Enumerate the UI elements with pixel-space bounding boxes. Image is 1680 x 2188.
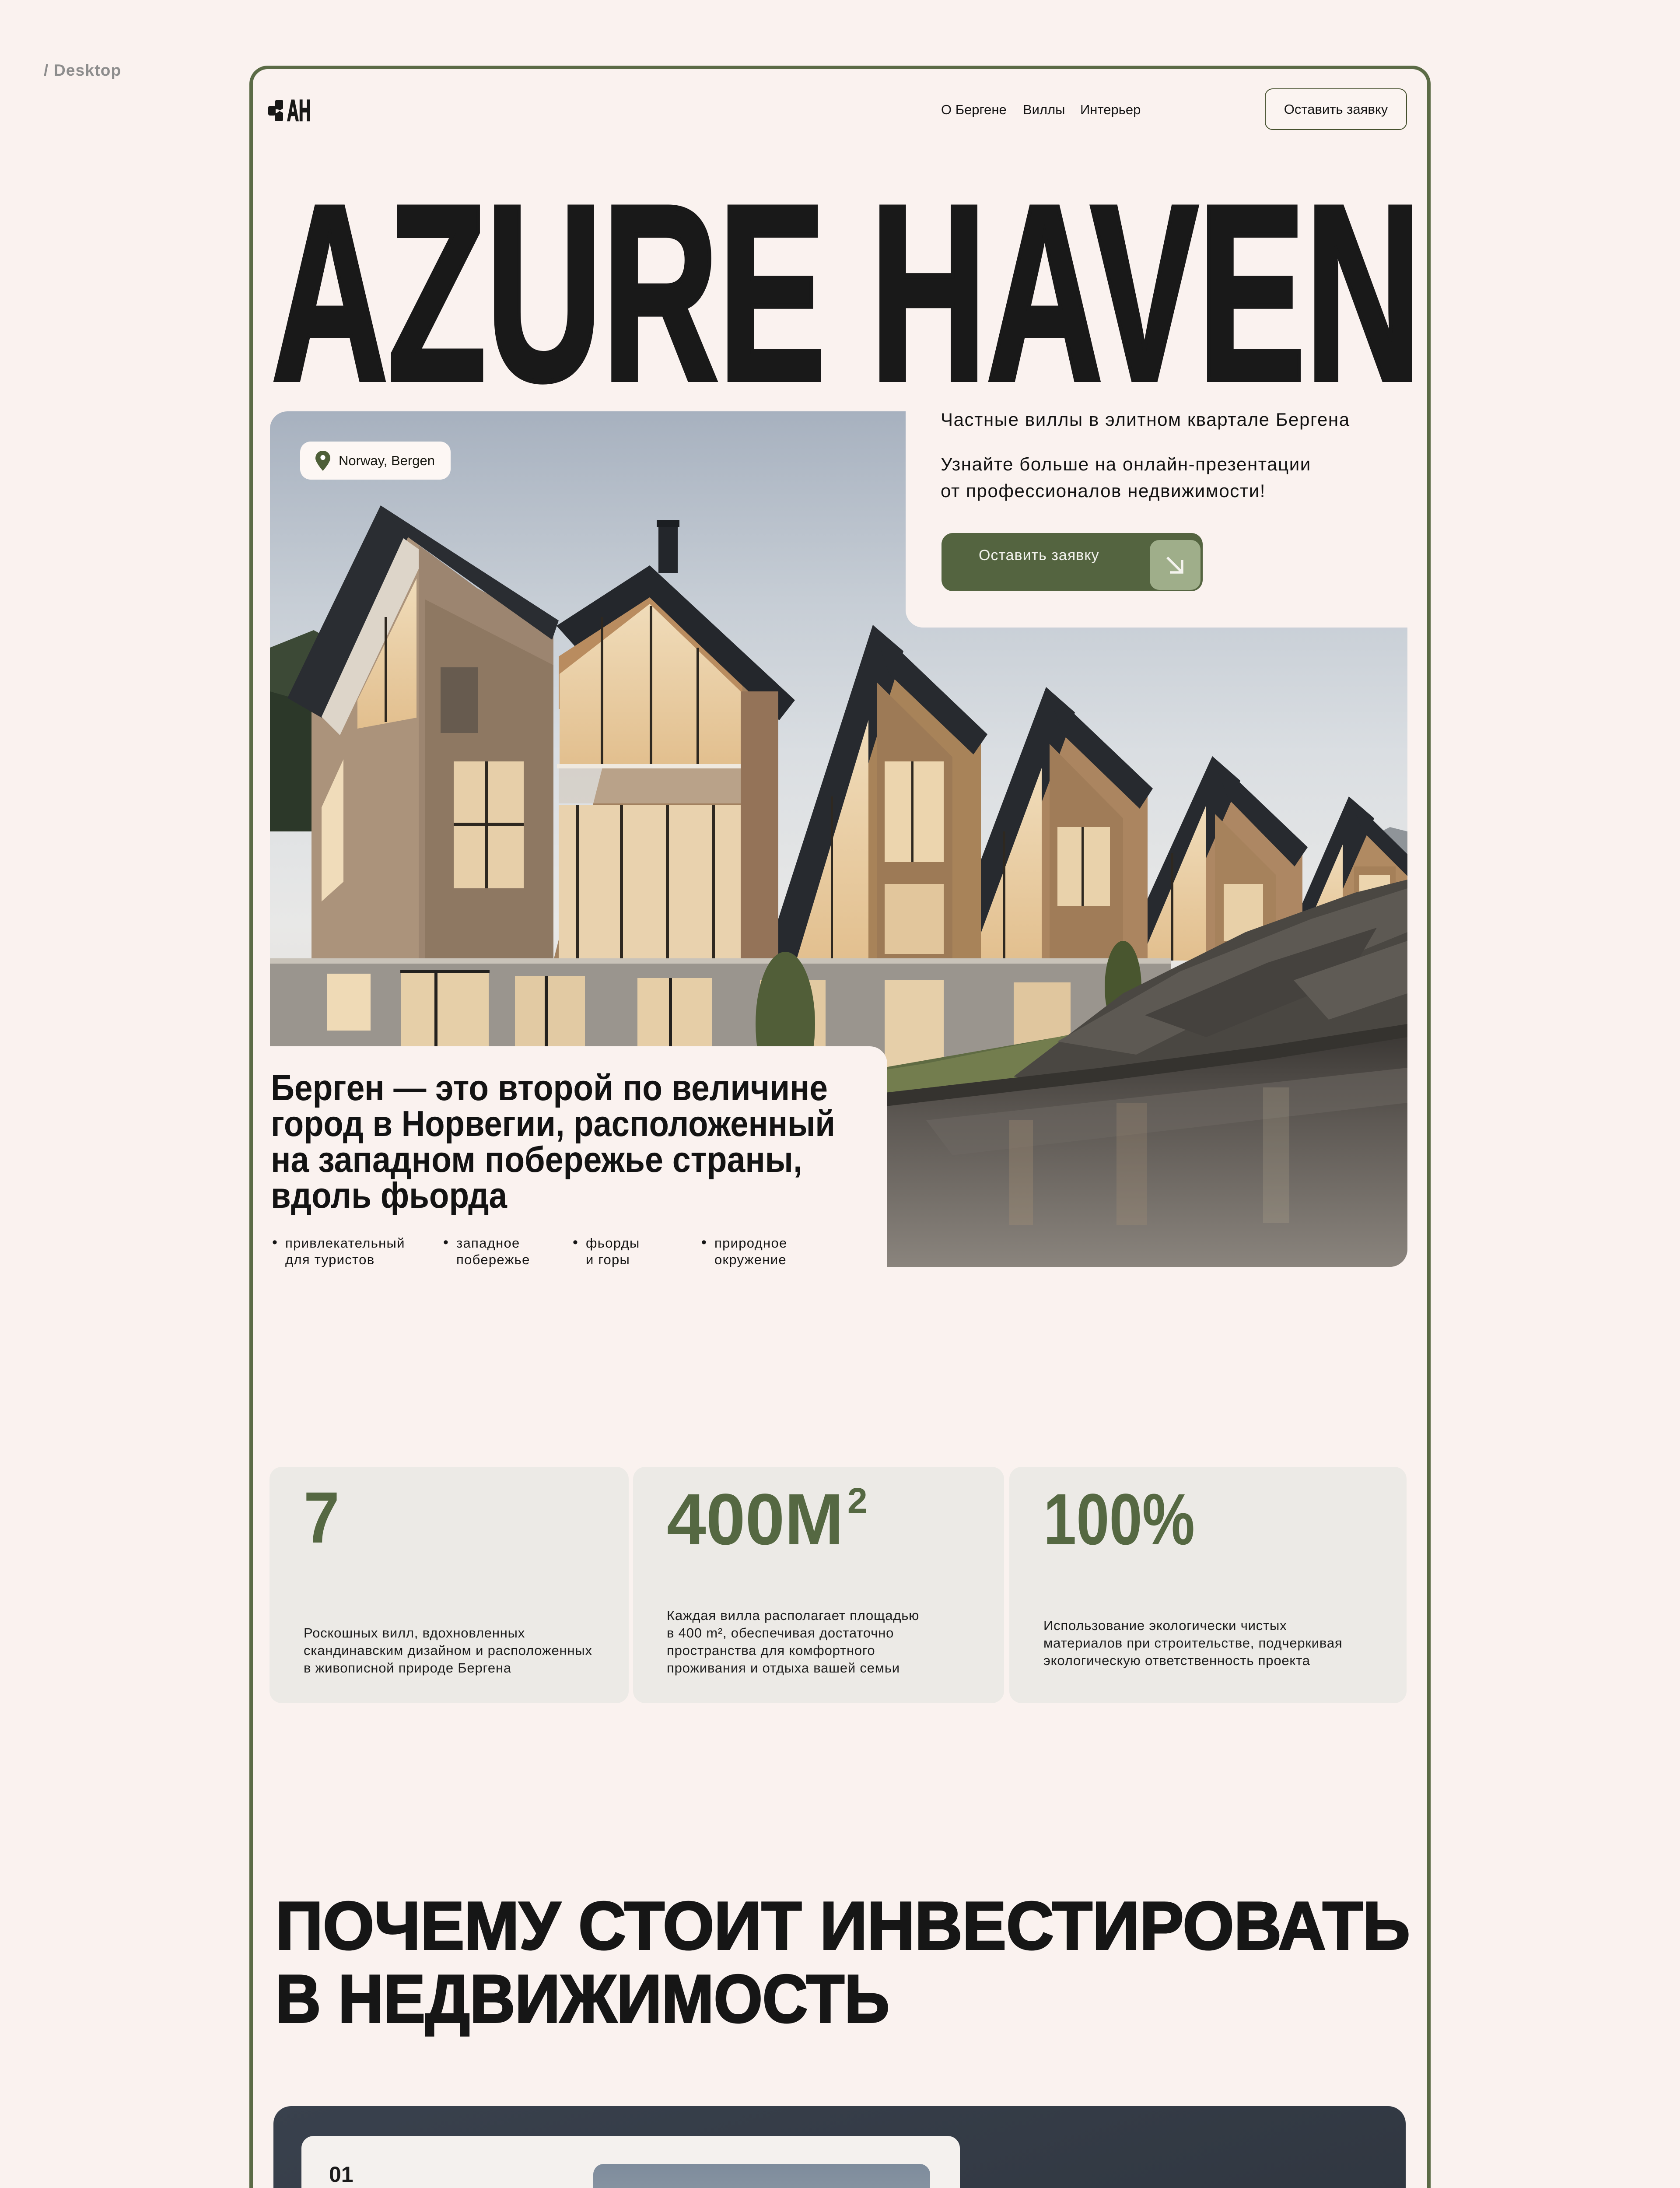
svg-text:400М: 400М xyxy=(667,1479,843,1560)
svg-text:В НЕДВИЖИМОСТЬ: В НЕДВИЖИМОСТЬ xyxy=(276,1961,889,2037)
svg-text:AZURE HAVEN: AZURE HAVEN xyxy=(272,188,1412,385)
svg-text:ПОЧЕМУ СТОИТ ИНВЕСТИРОВАТЬ: ПОЧЕМУ СТОИТ ИНВЕСТИРОВАТЬ xyxy=(276,1895,1410,1964)
svg-text:100%: 100% xyxy=(1043,1479,1195,1560)
svg-text:на западном побережье страны,: на западном побережье страны, xyxy=(271,1139,802,1180)
svg-text:город в Норвегии, расположенны: город в Норвегии, расположенный xyxy=(271,1103,835,1144)
svg-text:2: 2 xyxy=(847,1481,868,1521)
svg-text:Берген — это второй по величин: Берген — это второй по величине xyxy=(271,1069,828,1108)
svg-text:7: 7 xyxy=(304,1477,339,1558)
svg-text:вдоль фьорда: вдоль фьорда xyxy=(271,1175,507,1216)
svg-text:AH: AH xyxy=(287,98,311,122)
